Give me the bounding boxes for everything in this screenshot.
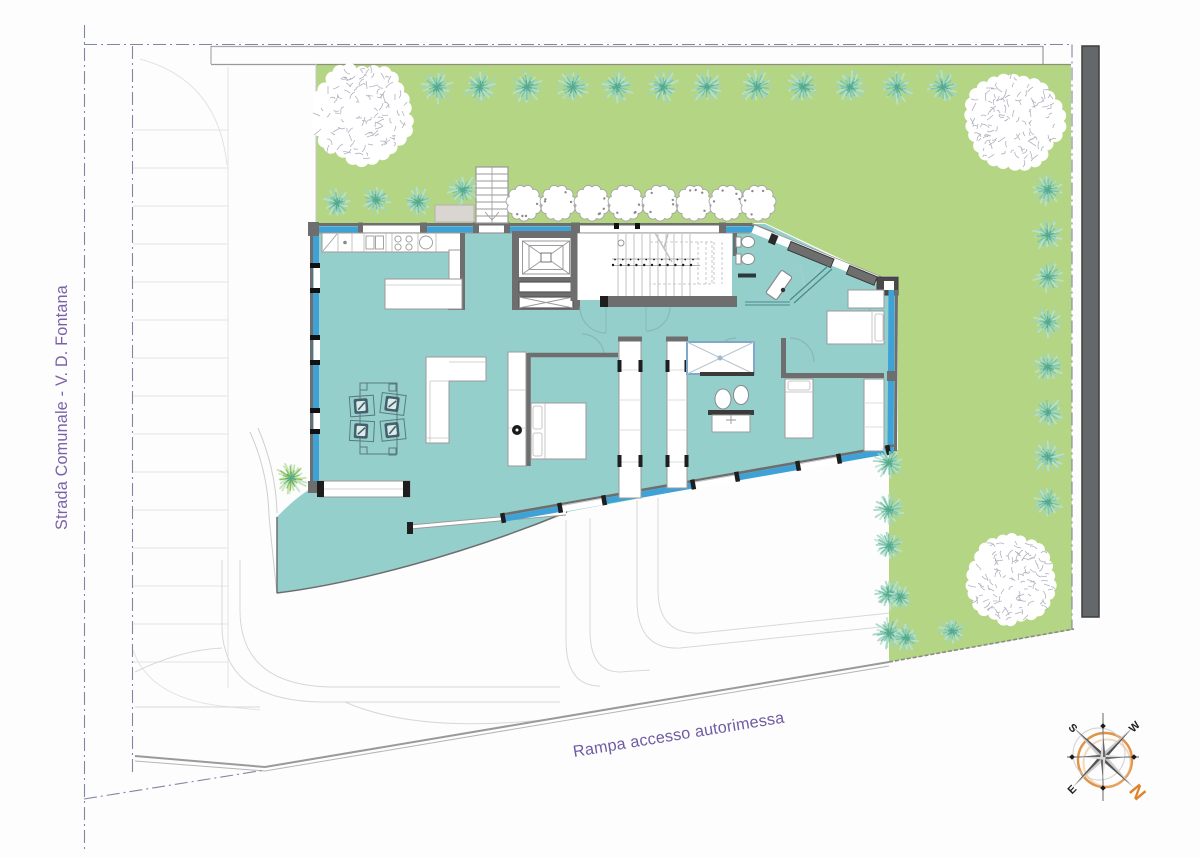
svg-text:Strada Comunale - V. D. Fontan: Strada Comunale - V. D. Fontana [53,285,71,530]
